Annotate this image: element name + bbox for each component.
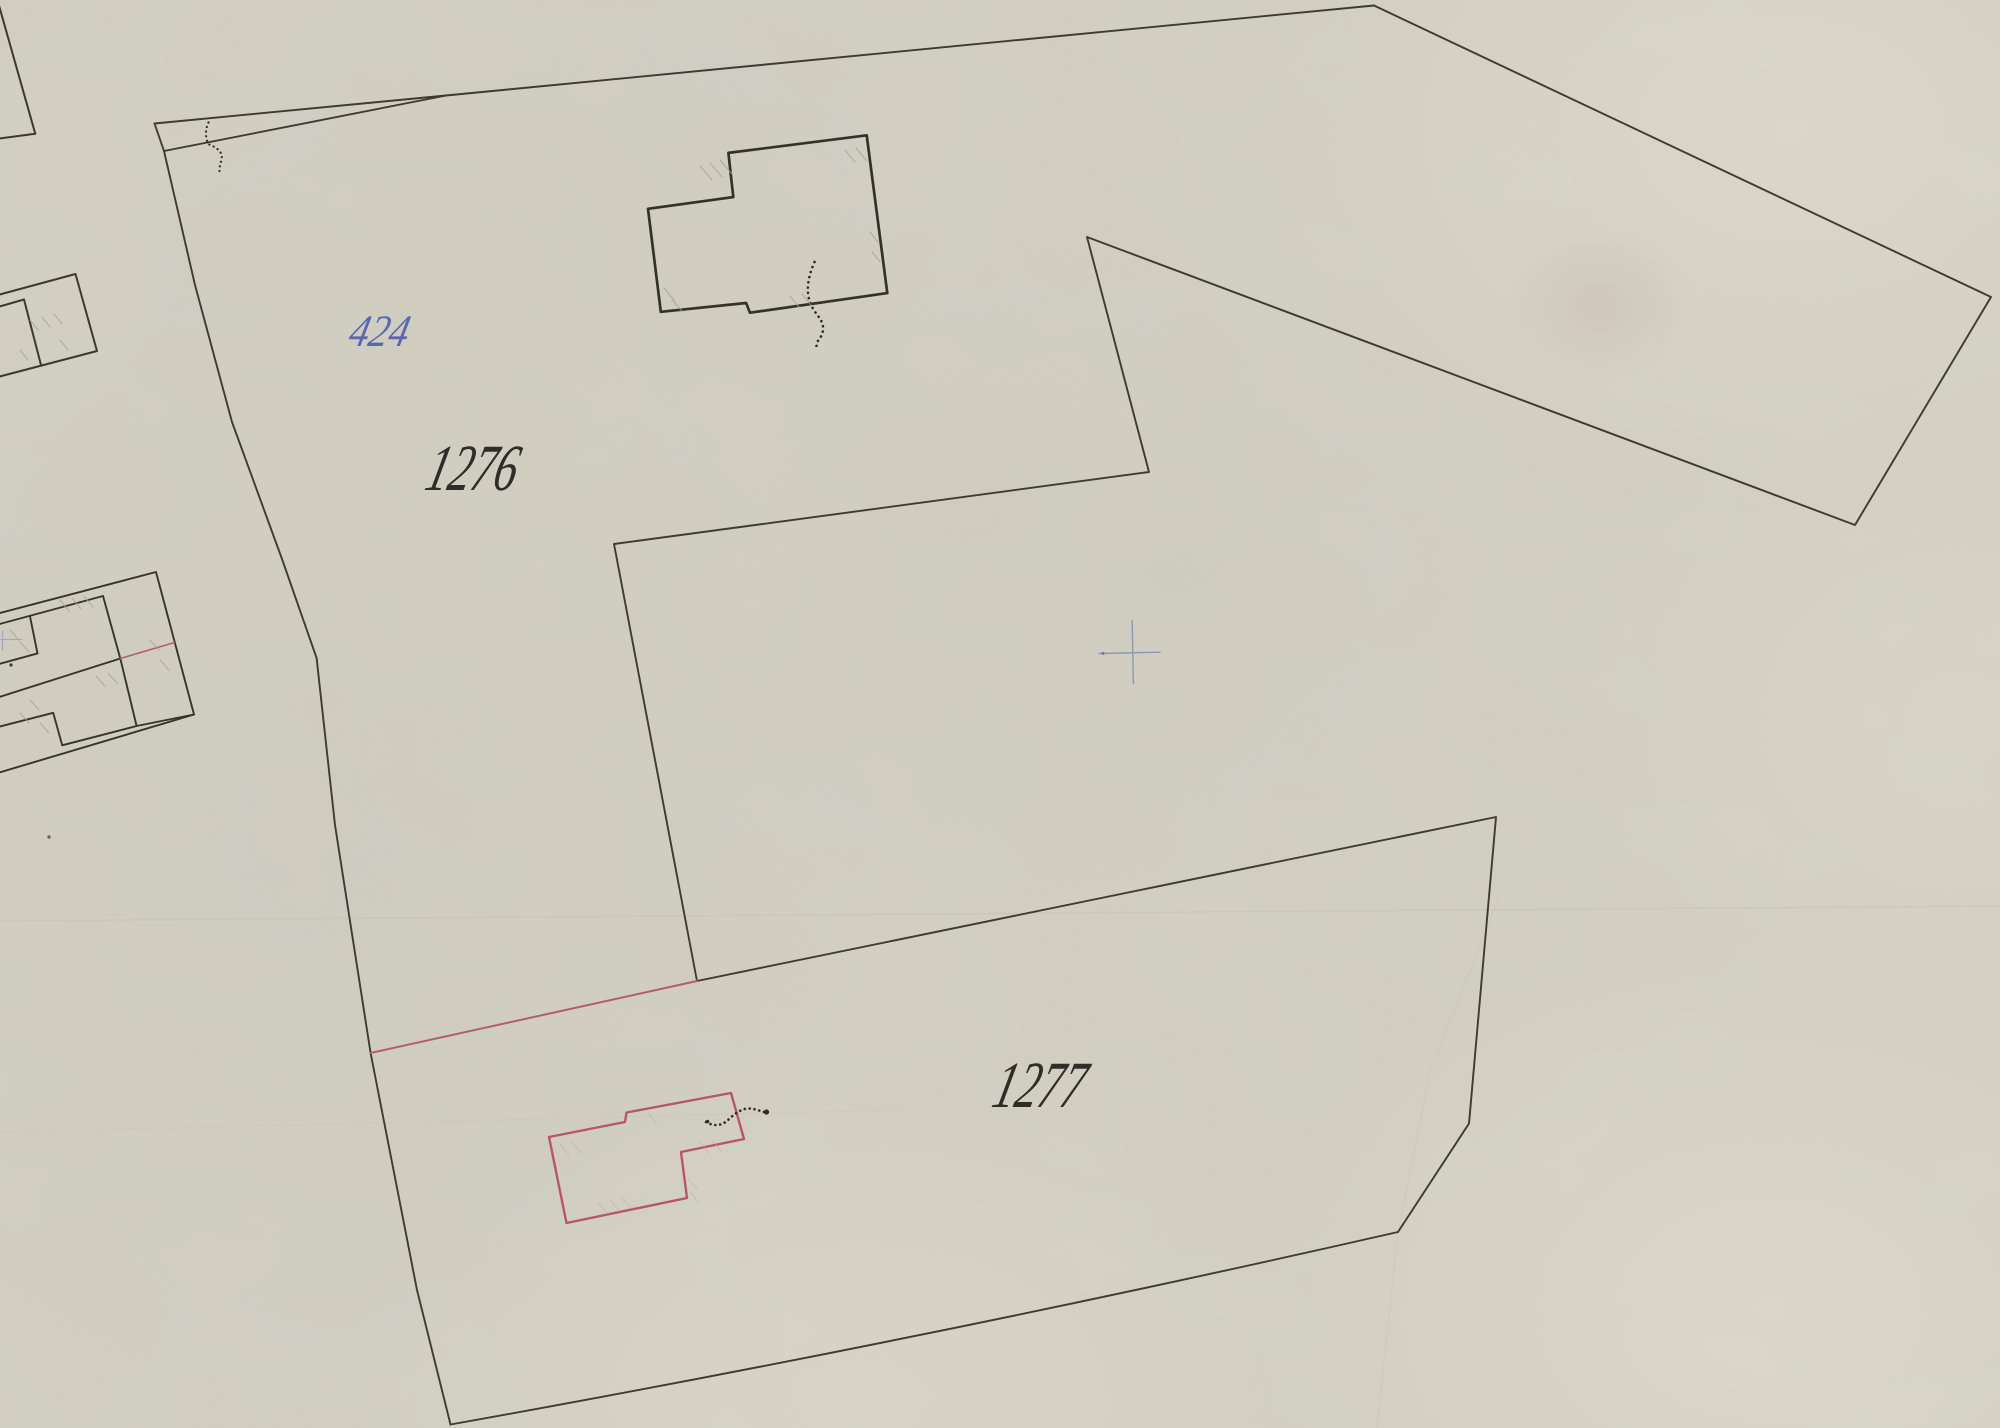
svg-text:424: 424 — [345, 306, 416, 356]
svg-text:1276: 1276 — [419, 432, 528, 505]
